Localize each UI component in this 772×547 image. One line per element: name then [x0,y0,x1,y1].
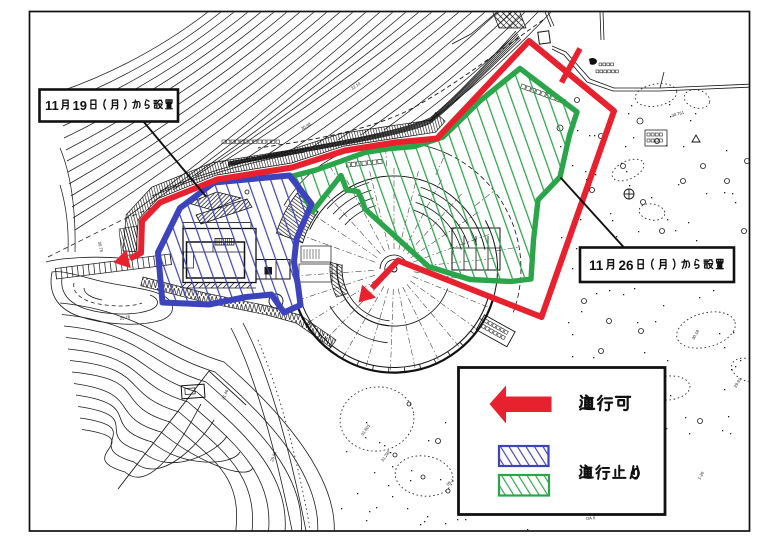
svg-text:26: 26 [619,258,635,273]
svg-text:19: 19 [73,98,87,113]
svg-text:OA 0: OA 0 [586,515,596,521]
svg-text:11: 11 [589,258,604,273]
svg-text:11: 11 [45,98,59,113]
